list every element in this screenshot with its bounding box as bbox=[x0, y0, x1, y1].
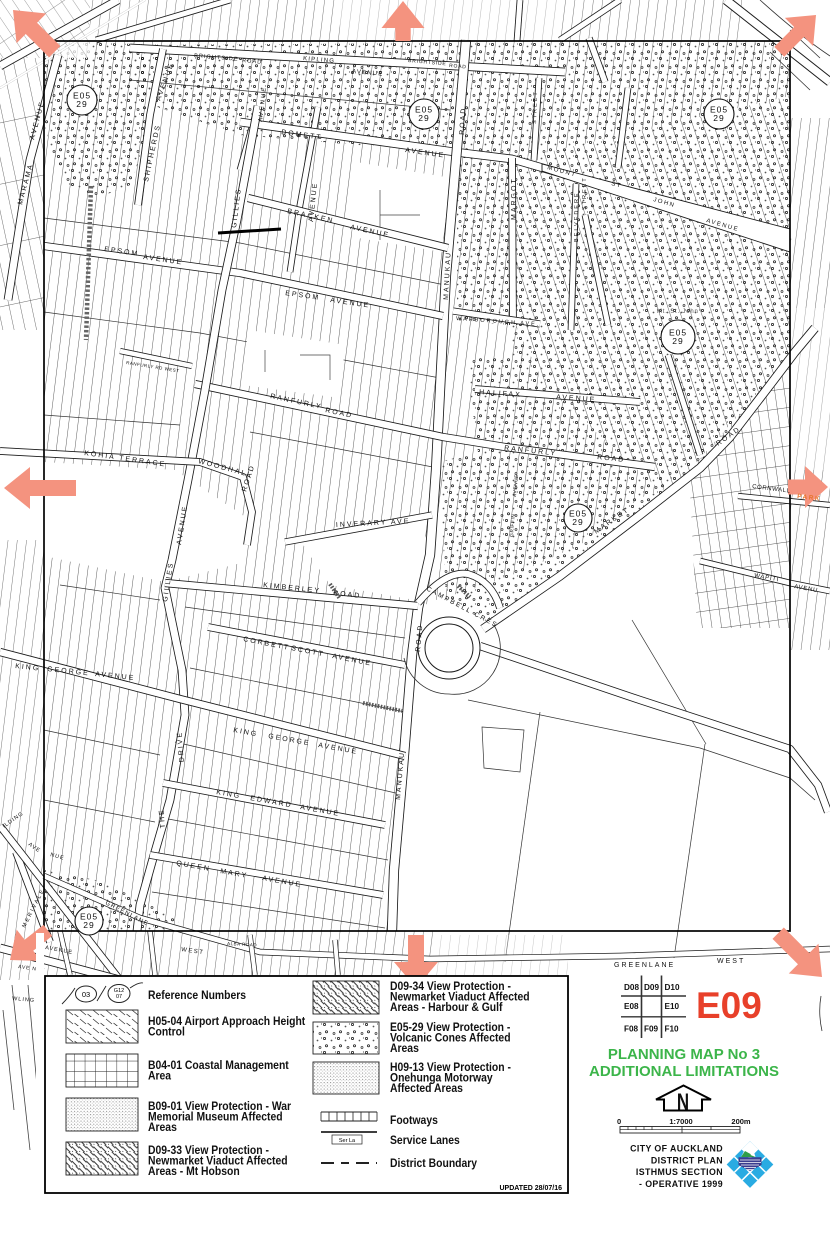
svg-text:GREENLANE: GREENLANE bbox=[614, 962, 675, 969]
svg-text:Area: Area bbox=[148, 1070, 172, 1083]
svg-text:29: 29 bbox=[418, 113, 429, 123]
svg-text:N: N bbox=[677, 1089, 689, 1115]
svg-text:Areas - Mt Hobson: Areas - Mt Hobson bbox=[148, 1166, 240, 1179]
svg-text:Control: Control bbox=[148, 1026, 185, 1039]
svg-text:D10: D10 bbox=[665, 983, 680, 992]
svg-text:Areas: Areas bbox=[390, 1043, 419, 1056]
svg-text:Reference Numbers: Reference Numbers bbox=[148, 989, 246, 1002]
svg-text:BELVEDERE: BELVEDERE bbox=[574, 191, 580, 242]
svg-text:200m: 200m bbox=[731, 1117, 751, 1126]
svg-text:UPDATED 28/07/16: UPDATED 28/07/16 bbox=[499, 1185, 562, 1192]
svg-text:Areas - Harbour & Gulf: Areas - Harbour & Gulf bbox=[390, 1002, 503, 1015]
svg-text:F10: F10 bbox=[665, 1025, 680, 1034]
svg-text:District Boundary: District Boundary bbox=[390, 1157, 478, 1170]
svg-text:Mt. St. John: Mt. St. John bbox=[657, 309, 699, 315]
svg-text:29: 29 bbox=[713, 113, 724, 123]
svg-text:STREET: STREET bbox=[582, 176, 588, 210]
svg-text:07: 07 bbox=[116, 994, 122, 1000]
svg-text:0: 0 bbox=[617, 1117, 621, 1126]
svg-text:DISTRICT PLAN: DISTRICT PLAN bbox=[651, 1155, 723, 1165]
svg-text:Service Lanes: Service Lanes bbox=[390, 1134, 460, 1147]
svg-text:29: 29 bbox=[572, 517, 583, 527]
svg-text:03: 03 bbox=[82, 990, 90, 999]
svg-text:F09: F09 bbox=[644, 1025, 659, 1034]
svg-text:CITY OF AUCKLAND: CITY OF AUCKLAND bbox=[630, 1144, 723, 1154]
svg-text:D08: D08 bbox=[624, 983, 639, 992]
svg-text:29: 29 bbox=[76, 99, 87, 109]
svg-text:PLANNING MAP No 3: PLANNING MAP No 3 bbox=[608, 1046, 760, 1063]
svg-text:29: 29 bbox=[83, 920, 94, 930]
svg-text:D09: D09 bbox=[644, 983, 659, 992]
svg-text:ISTHMUS SECTION: ISTHMUS SECTION bbox=[636, 1167, 723, 1177]
svg-text:ADDITIONAL LIMITATIONS: ADDITIONAL LIMITATIONS bbox=[589, 1063, 779, 1080]
svg-text:E08: E08 bbox=[624, 1002, 639, 1011]
svg-text:29: 29 bbox=[672, 336, 683, 346]
svg-text:MARGOT: MARGOT bbox=[511, 177, 518, 220]
svg-text:- OPERATIVE 1999: - OPERATIVE 1999 bbox=[639, 1179, 723, 1189]
svg-text:Areas: Areas bbox=[148, 1122, 177, 1135]
svg-text:1:7000: 1:7000 bbox=[669, 1117, 692, 1126]
svg-text:STREET: STREET bbox=[532, 90, 539, 124]
svg-text:ROAD: ROAD bbox=[459, 107, 467, 136]
svg-text:Affected Areas: Affected Areas bbox=[390, 1083, 463, 1096]
svg-text:Ser La: Ser La bbox=[339, 1138, 356, 1144]
svg-text:F08: F08 bbox=[624, 1025, 639, 1034]
svg-text:E10: E10 bbox=[665, 1002, 680, 1011]
svg-text:Footways: Footways bbox=[390, 1114, 438, 1127]
svg-text:WEST: WEST bbox=[717, 958, 745, 965]
svg-text:E09: E09 bbox=[696, 985, 762, 1026]
